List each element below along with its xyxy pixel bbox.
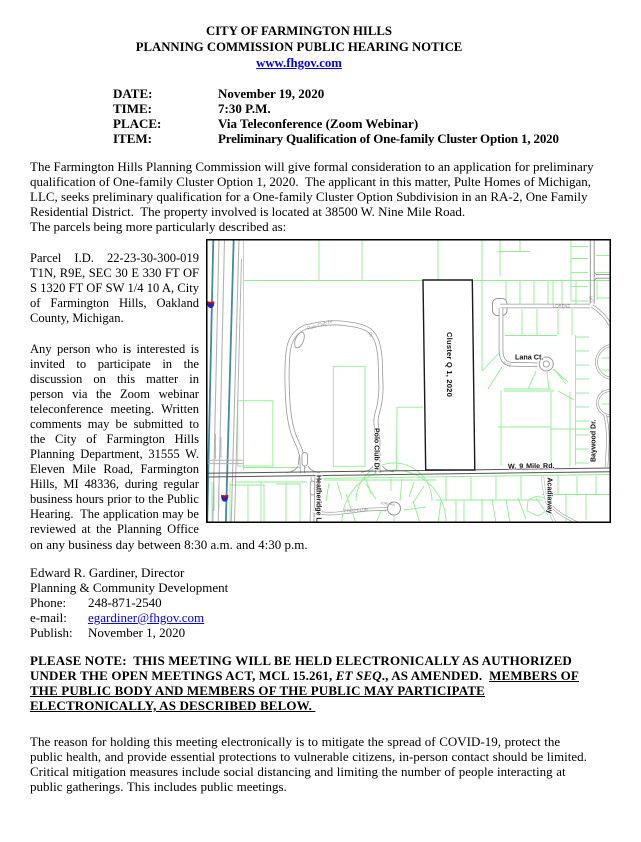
svg-text:Baywood Dr.: Baywood Dr. bbox=[591, 420, 598, 462]
svg-text:Polo Club Dr: Polo Club Dr bbox=[373, 428, 380, 471]
svg-text:LORENZ: LORENZ bbox=[553, 304, 570, 309]
svg-text:W. 9 Mile Rd.: W. 9 Mile Rd. bbox=[508, 461, 555, 471]
svg-text:Heatheridge L: Heatheridge L bbox=[315, 475, 322, 522]
svg-text:Acadiaway: Acadiaway bbox=[546, 478, 553, 514]
svg-text:Lana Ct.: Lana Ct. bbox=[515, 353, 543, 362]
svg-text:Cluster Q 1, 2020: Cluster Q 1, 2020 bbox=[445, 332, 454, 397]
svg-text:DR: DR bbox=[589, 296, 594, 302]
